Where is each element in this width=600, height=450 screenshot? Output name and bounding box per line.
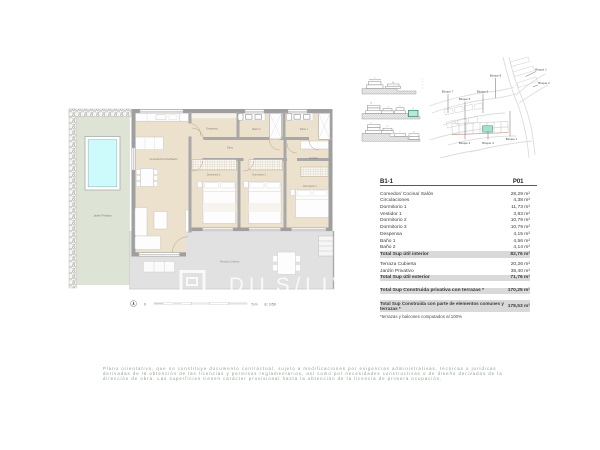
svg-text:Bloque 1: Bloque 1	[506, 137, 518, 141]
svg-text:Bloque 6: Bloque 6	[477, 90, 489, 94]
svg-text:Dormitorio 1: Dormitorio 1	[303, 185, 317, 188]
svg-text:4: 4	[412, 108, 414, 110]
svg-text:Baño 2: Baño 2	[253, 128, 262, 131]
svg-text:Vestidor: Vestidor	[309, 157, 318, 160]
svg-text:8: 8	[413, 132, 415, 134]
svg-text:Terraza Cubierta: Terraza Cubierta	[220, 259, 240, 263]
svg-text:Bloque 3: Bloque 3	[482, 141, 494, 145]
svg-text:7: 7	[399, 131, 401, 133]
svg-text:10: 10	[370, 103, 373, 105]
svg-text:1b: 1b	[392, 82, 395, 84]
svg-text:9: 9	[387, 106, 389, 108]
svg-text:Jardín Privativo: Jardín Privativo	[93, 214, 112, 218]
svg-text:Bloque 8: Bloque 8	[490, 74, 502, 78]
svg-text:Despensa: Despensa	[206, 127, 218, 130]
svg-text:E: 1/50: E: 1/50	[265, 302, 276, 306]
svg-text:1: 1	[374, 78, 376, 80]
svg-text:2: 2	[370, 122, 372, 124]
svg-text:3: 3	[386, 126, 388, 128]
svg-text:Paso: Paso	[227, 146, 233, 149]
svg-text:DILS/LIV: DILS/LIV	[229, 274, 351, 297]
svg-text:Bloque 2: Bloque 2	[538, 81, 550, 85]
svg-text:6: 6	[399, 105, 401, 107]
svg-text:0: 0	[144, 302, 146, 306]
svg-text:5 m: 5 m	[252, 302, 258, 306]
svg-text:Bloque 7: Bloque 7	[442, 90, 454, 94]
svg-text:Bloque 4: Bloque 4	[459, 141, 471, 145]
svg-text:Comedor/Cocina/Salón: Comedor/Cocina/Salón	[150, 157, 178, 161]
svg-text:Dormitorio 2: Dormitorio 2	[207, 173, 221, 176]
svg-text:Baño 1: Baño 1	[300, 128, 309, 131]
svg-text:Bloque 5: Bloque 5	[459, 97, 471, 101]
svg-text:Bloque 1: Bloque 1	[535, 68, 547, 72]
svg-text:Dormitorio 3: Dormitorio 3	[252, 173, 266, 176]
